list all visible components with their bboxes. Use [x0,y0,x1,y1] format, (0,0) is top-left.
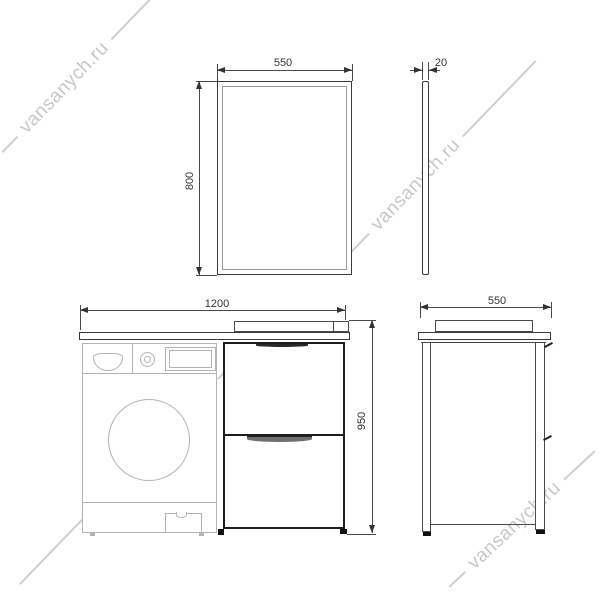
cabinet-foot [423,532,431,536]
basin-rim-side [435,320,533,332]
cabinet-foot [536,530,545,534]
washer-kick-plate-notch [176,512,187,518]
extension-line [551,302,552,318]
countertop-side [418,332,551,340]
cabinet-top-edge [421,342,546,343]
vanity-side-view: 550 [0,0,600,600]
arrowhead [420,304,428,310]
cabinet-bottom-panel [431,524,535,525]
side-leg-back [535,342,545,530]
dimension-line [420,307,551,308]
side-leg-front [422,342,431,532]
arrowhead [543,304,551,310]
cabinet-depth-label: 550 [488,295,506,307]
technical-drawing-canvas: vansanych.ru vansanych.ru vansanych.ru v… [0,0,600,600]
